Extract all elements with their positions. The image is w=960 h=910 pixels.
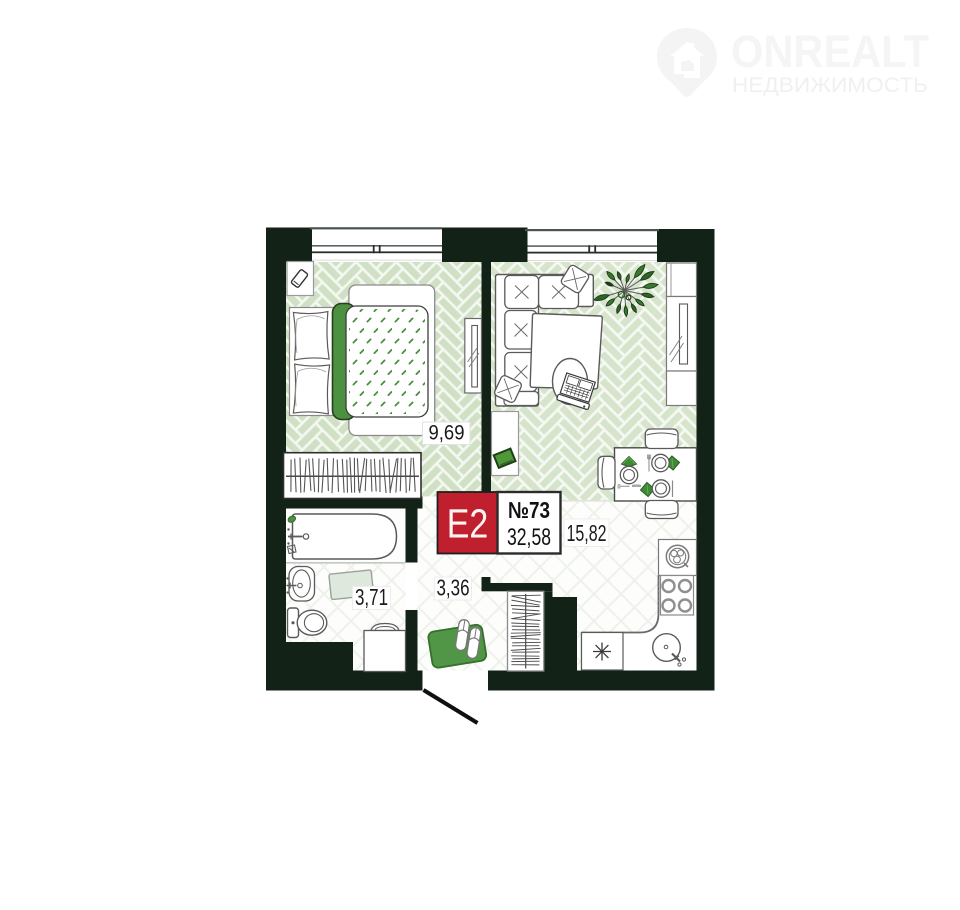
- svg-text:№73: №73: [508, 497, 550, 523]
- svg-text:32,58: 32,58: [507, 524, 551, 551]
- svg-text:9,69: 9,69: [429, 421, 465, 445]
- svg-text:НЕДВИЖИМОСТЬ: НЕДВИЖИМОСТЬ: [732, 74, 928, 97]
- svg-text:3,71: 3,71: [355, 584, 388, 610]
- svg-text:ONREALT: ONREALT: [731, 26, 929, 77]
- svg-text:3,36: 3,36: [437, 575, 470, 601]
- svg-text:E2: E2: [447, 501, 489, 547]
- svg-text:15,82: 15,82: [567, 520, 607, 546]
